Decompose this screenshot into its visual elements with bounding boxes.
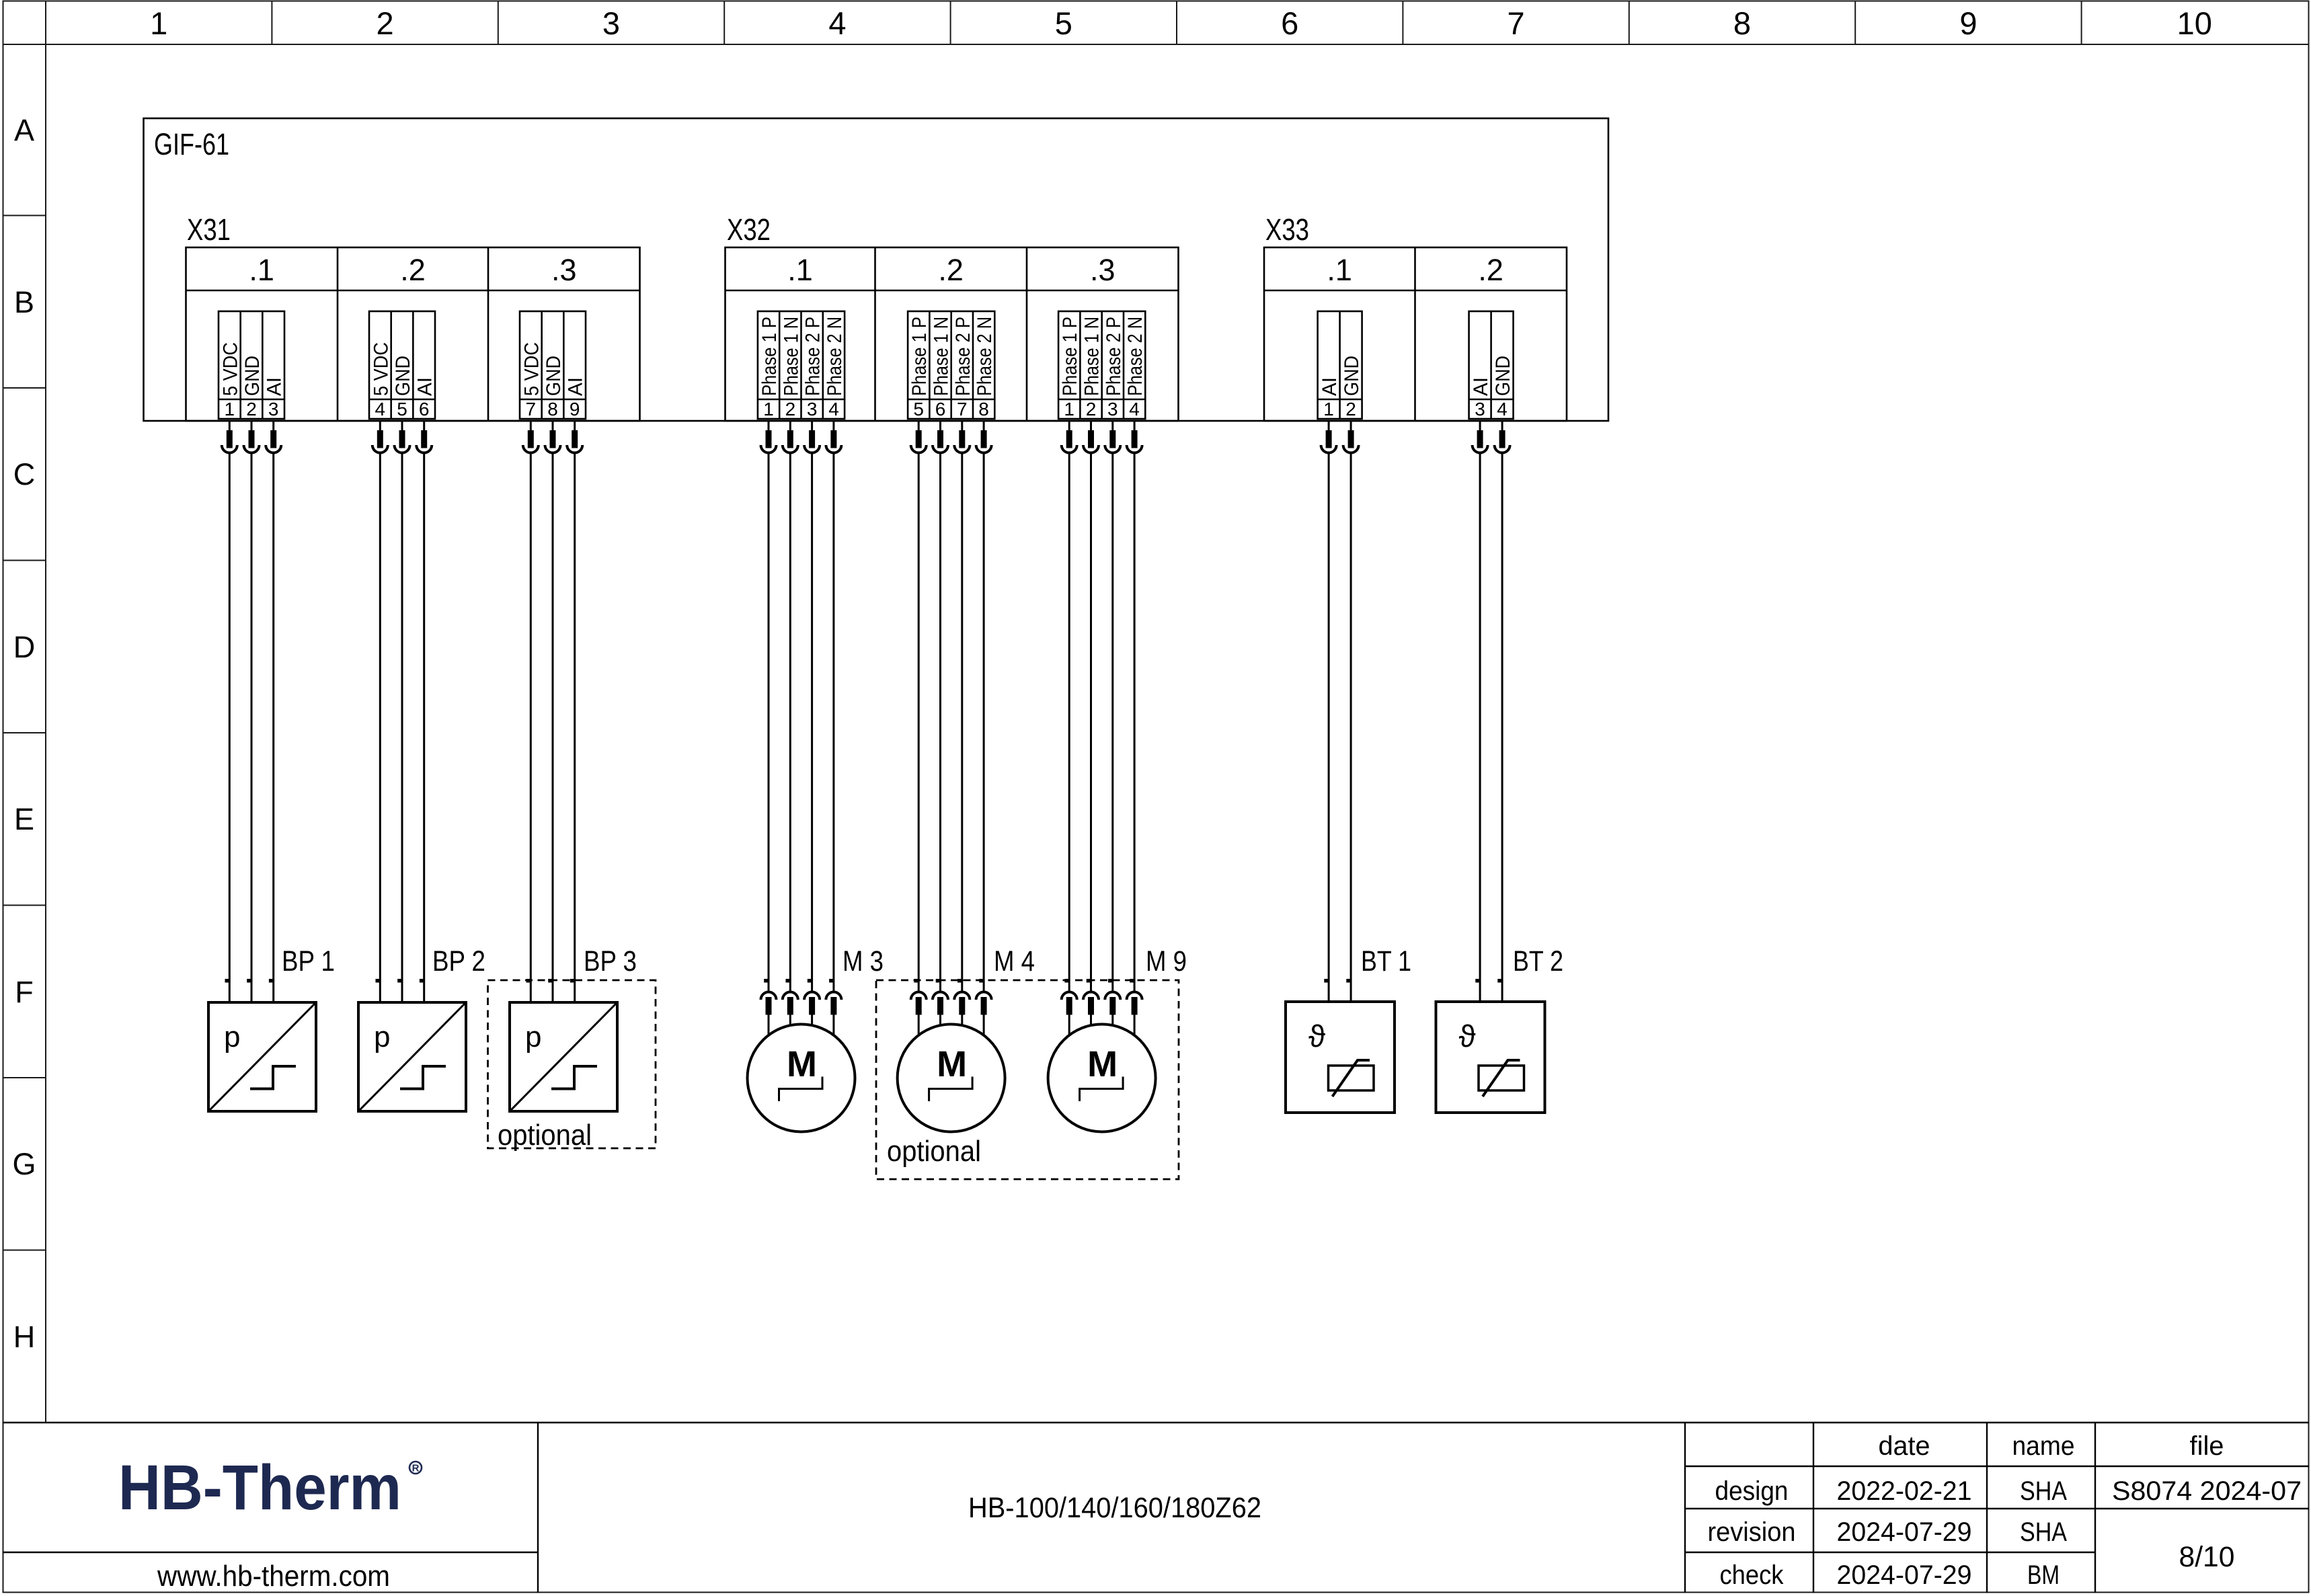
svg-text:BP 1: BP 1 xyxy=(282,945,335,977)
svg-text:.3: .3 xyxy=(1090,253,1115,287)
svg-text:BT 2: BT 2 xyxy=(1513,945,1563,977)
svg-text:E: E xyxy=(14,802,34,836)
svg-text:ϑ: ϑ xyxy=(1308,1019,1325,1053)
svg-text:2024-07-29: 2024-07-29 xyxy=(1837,1517,1972,1547)
svg-text:2: 2 xyxy=(785,399,796,420)
svg-text:7: 7 xyxy=(957,399,968,420)
svg-text:8: 8 xyxy=(978,399,989,420)
svg-text:Phase 2 P: Phase 2 P xyxy=(1103,317,1125,396)
svg-text:D: D xyxy=(13,630,36,664)
svg-text:Phase 2 N: Phase 2 N xyxy=(824,317,846,396)
svg-text:C: C xyxy=(13,457,36,491)
svg-text:5: 5 xyxy=(913,399,924,420)
svg-text:4: 4 xyxy=(1497,399,1507,420)
svg-text:X33: X33 xyxy=(1265,212,1309,247)
svg-text:.2: .2 xyxy=(1478,253,1503,287)
svg-text:Phase 1 P: Phase 1 P xyxy=(758,317,781,396)
svg-text:AI: AI xyxy=(565,377,587,396)
svg-text:2: 2 xyxy=(1086,399,1097,420)
svg-text:BM: BM xyxy=(2027,1560,2060,1590)
svg-text:BP 3: BP 3 xyxy=(584,945,637,977)
svg-text:.2: .2 xyxy=(400,253,426,287)
svg-text:.2: .2 xyxy=(938,253,964,287)
svg-text:5 VDC: 5 VDC xyxy=(520,342,543,396)
svg-text:BT 1: BT 1 xyxy=(1361,945,1411,977)
svg-text:M: M xyxy=(937,1044,967,1084)
svg-text:G: G xyxy=(12,1147,36,1181)
svg-text:HB-Therm: HB-Therm xyxy=(118,1452,401,1523)
svg-text:M 4: M 4 xyxy=(994,945,1035,977)
svg-text:6: 6 xyxy=(419,399,430,420)
svg-text:6: 6 xyxy=(935,399,946,420)
svg-text:.1: .1 xyxy=(249,253,274,287)
svg-text:Phase 2 P: Phase 2 P xyxy=(952,317,974,396)
svg-text:A: A xyxy=(14,113,34,147)
svg-text:Phase 2 N: Phase 2 N xyxy=(1124,317,1146,396)
svg-text:GND: GND xyxy=(543,356,565,396)
svg-text:M 3: M 3 xyxy=(843,945,884,977)
svg-text:4: 4 xyxy=(828,399,839,420)
svg-text:2: 2 xyxy=(1345,399,1356,420)
svg-text:SHA: SHA xyxy=(2020,1517,2067,1547)
svg-text:SHA: SHA xyxy=(2020,1476,2067,1506)
svg-text:X31: X31 xyxy=(187,212,231,247)
svg-text:.1: .1 xyxy=(1327,253,1352,287)
svg-text:HB-100/140/160/180Z62: HB-100/140/160/180Z62 xyxy=(968,1492,1261,1524)
svg-text:5 VDC: 5 VDC xyxy=(219,342,241,396)
svg-text:ϑ: ϑ xyxy=(1459,1019,1476,1053)
svg-text:1: 1 xyxy=(150,5,167,41)
svg-text:AI: AI xyxy=(414,377,436,396)
svg-text:AI: AI xyxy=(1470,377,1492,396)
svg-text:Phase 1 N: Phase 1 N xyxy=(1081,317,1103,396)
svg-text:5: 5 xyxy=(1055,5,1072,41)
svg-text:Phase 1 N: Phase 1 N xyxy=(780,317,802,396)
svg-text:8/10: 8/10 xyxy=(2179,1541,2235,1573)
svg-text:2024-07-29: 2024-07-29 xyxy=(1837,1560,1972,1590)
svg-text:4: 4 xyxy=(1129,399,1140,420)
svg-text:B: B xyxy=(14,285,34,319)
svg-text:10: 10 xyxy=(2177,5,2212,41)
svg-text:GND: GND xyxy=(1492,356,1514,396)
svg-text:2: 2 xyxy=(377,5,394,41)
svg-text:H: H xyxy=(13,1320,36,1354)
svg-text:8: 8 xyxy=(1733,5,1751,41)
svg-text:M: M xyxy=(1087,1044,1118,1084)
svg-text:3: 3 xyxy=(807,399,818,420)
svg-text:Phase 2 N: Phase 2 N xyxy=(974,317,996,396)
svg-text:check: check xyxy=(1720,1560,1785,1590)
svg-text:M 9: M 9 xyxy=(1146,945,1187,977)
svg-text:M: M xyxy=(787,1044,817,1084)
svg-text:GND: GND xyxy=(241,356,264,396)
svg-text:X32: X32 xyxy=(727,212,771,247)
svg-text:3: 3 xyxy=(602,5,620,41)
svg-text:optional: optional xyxy=(498,1119,592,1152)
svg-text:name: name xyxy=(2012,1431,2075,1461)
svg-text:p: p xyxy=(525,1021,541,1053)
svg-text:3: 3 xyxy=(1475,399,1485,420)
svg-text:1: 1 xyxy=(225,399,235,420)
svg-text:9: 9 xyxy=(1959,5,1977,41)
svg-text:.1: .1 xyxy=(787,253,813,287)
svg-text:GIF-61: GIF-61 xyxy=(154,127,229,161)
svg-text:GND: GND xyxy=(1341,356,1363,396)
svg-text:5 VDC: 5 VDC xyxy=(370,342,392,396)
svg-text:AI: AI xyxy=(264,377,286,396)
svg-text:optional: optional xyxy=(887,1135,981,1168)
svg-text:Phase 1 P: Phase 1 P xyxy=(1059,317,1081,396)
svg-text:9: 9 xyxy=(570,399,580,420)
svg-text:p: p xyxy=(224,1021,240,1053)
svg-text:R: R xyxy=(412,1463,420,1474)
svg-text:design: design xyxy=(1715,1476,1789,1506)
svg-text:Phase 2 P: Phase 2 P xyxy=(802,317,824,396)
svg-text:file: file xyxy=(2190,1431,2224,1461)
svg-text:p: p xyxy=(374,1021,390,1053)
svg-text:2022-02-21: 2022-02-21 xyxy=(1837,1476,1972,1506)
svg-text:6: 6 xyxy=(1281,5,1298,41)
svg-text:2: 2 xyxy=(246,399,257,420)
svg-text:Phase 1 P: Phase 1 P xyxy=(908,317,931,396)
svg-text:F: F xyxy=(15,975,34,1009)
svg-text:.3: .3 xyxy=(551,253,577,287)
svg-text:4: 4 xyxy=(828,5,846,41)
svg-text:GND: GND xyxy=(392,356,414,396)
svg-text:1: 1 xyxy=(1064,399,1074,420)
svg-text:7: 7 xyxy=(1507,5,1525,41)
svg-text:Phase 1 N: Phase 1 N xyxy=(931,317,953,396)
svg-text:3: 3 xyxy=(1107,399,1118,420)
svg-text:revision: revision xyxy=(1708,1517,1796,1547)
svg-text:AI: AI xyxy=(1319,377,1341,396)
svg-text:4: 4 xyxy=(375,399,386,420)
svg-text:date: date xyxy=(1879,1431,1930,1461)
svg-text:www.hb-therm.com: www.hb-therm.com xyxy=(157,1560,390,1593)
svg-text:5: 5 xyxy=(397,399,407,420)
svg-text:3: 3 xyxy=(268,399,279,420)
svg-text:1: 1 xyxy=(763,399,774,420)
svg-text:8: 8 xyxy=(547,399,558,420)
svg-text:7: 7 xyxy=(526,399,537,420)
svg-text:1: 1 xyxy=(1323,399,1334,420)
svg-text:BP 2: BP 2 xyxy=(432,945,485,977)
svg-text:S8074 2024-07: S8074 2024-07 xyxy=(2112,1476,2302,1506)
